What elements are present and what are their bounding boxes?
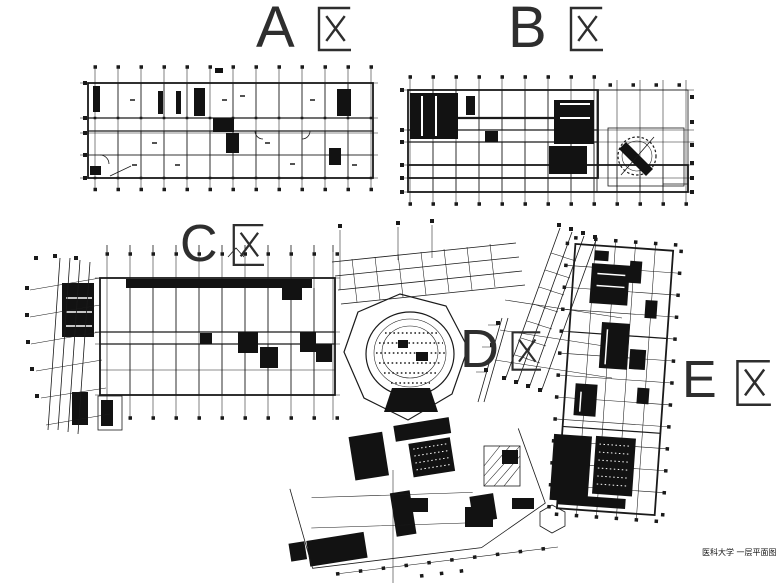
zone-a-letter: A — [256, 2, 295, 54]
sheet-title: 医科大学 一层平面图 — [702, 548, 780, 557]
cad-floorplan-sheet: A B C D E 医科大学 一层平面图 — [0, 0, 780, 585]
zone-c-letter: C — [180, 220, 218, 268]
zone-b-building-plan — [400, 75, 694, 206]
zone-d-label: D — [460, 324, 541, 378]
zone-c-label: C — [180, 220, 264, 270]
zone-b-label: B — [508, 2, 603, 56]
zone-b-letter: B — [508, 2, 547, 54]
qu-district-glyph — [315, 2, 351, 56]
auditorium-outline — [366, 312, 454, 396]
floorplan-drawing — [0, 0, 780, 585]
zone-d-letter: D — [460, 324, 499, 374]
qu-district-glyph — [730, 356, 774, 410]
zone-e-letter: E — [682, 356, 717, 404]
zone-e-label: E — [682, 356, 774, 410]
zone-a-label: A — [256, 2, 351, 56]
qu-district-glyph — [567, 2, 603, 56]
qu-district-glyph — [509, 324, 541, 378]
qu-district-glyph — [230, 220, 264, 270]
zone-a-building-plan — [80, 66, 378, 191]
